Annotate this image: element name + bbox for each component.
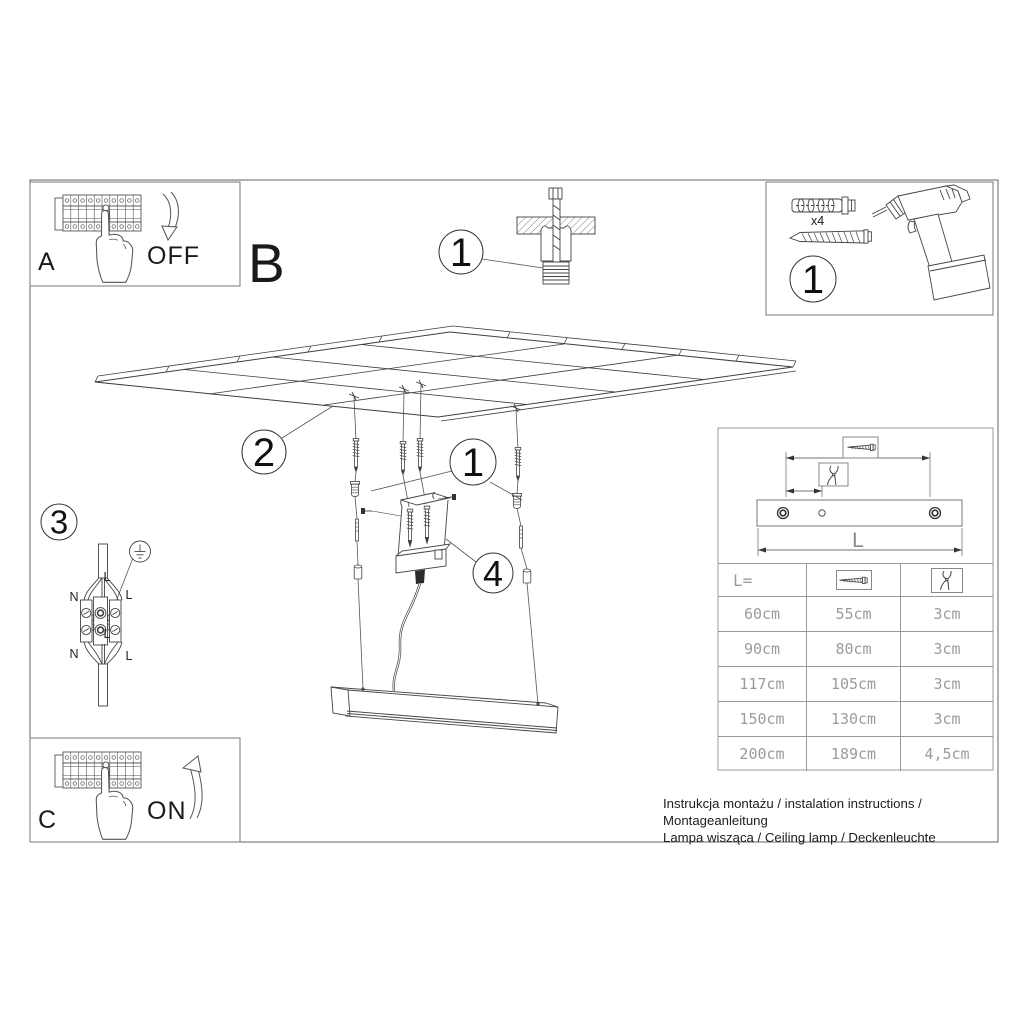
callout-anchor-detail: 1 — [439, 230, 543, 275]
table-cell: 200cm — [718, 736, 806, 771]
table-cell: 189cm — [806, 736, 900, 771]
step-a-label: A — [38, 248, 55, 276]
step-c-label: C — [38, 806, 56, 834]
table-header-pliers — [900, 564, 993, 596]
power-cable — [394, 583, 420, 691]
table-header-screw — [806, 564, 900, 596]
plug-quantity: x4 — [811, 214, 824, 228]
step-b-label: B — [248, 232, 285, 294]
svg-text:1: 1 — [450, 231, 472, 275]
canopy-bracket — [361, 492, 456, 691]
svg-text:4: 4 — [483, 553, 503, 594]
table-cell: 117cm — [718, 666, 806, 701]
tools-box: x4 — [766, 182, 993, 315]
table-cell: 60cm — [718, 596, 806, 631]
svg-text:2: 2 — [253, 431, 275, 475]
table-cell: 3cm — [900, 666, 993, 701]
callout-hardware: 1 — [371, 439, 522, 500]
table-cell: 3cm — [900, 596, 993, 631]
pendant-lamp — [331, 687, 558, 733]
svg-text:L: L — [104, 627, 111, 641]
svg-text:L: L — [104, 570, 111, 584]
svg-text:1: 1 — [462, 441, 484, 485]
footer-text: Instrukcja montażu / instalation instruc… — [663, 795, 1024, 846]
toggle-anchor-detail — [517, 188, 595, 284]
callout-ceiling: 2 — [242, 406, 333, 475]
off-label: OFF — [147, 242, 200, 270]
svg-text:N: N — [69, 647, 78, 661]
table-cell: 4,5cm — [900, 736, 993, 771]
svg-text:N: N — [69, 590, 78, 604]
lamp-top-view — [757, 500, 962, 526]
length-dimension-label: L — [852, 529, 864, 552]
footer-line-2: Lampa wisząca / Ceiling lamp / Deckenleu… — [663, 829, 1024, 846]
on-label: ON — [147, 797, 187, 825]
svg-text:1: 1 — [802, 258, 824, 302]
step-c-power-on: C ON — [30, 738, 240, 842]
svg-text:L: L — [126, 649, 133, 663]
screw-icon — [839, 575, 869, 586]
callout-tools: 1 — [790, 256, 836, 302]
wall-plug-icon — [792, 197, 855, 214]
table-header-length: L= — [718, 564, 806, 596]
callout-wiring-number: 3 — [50, 504, 68, 541]
svg-text:L: L — [126, 588, 133, 602]
table-cell: 3cm — [900, 701, 993, 736]
line-art: A OFF B 1 x4 — [0, 0, 1024, 1024]
table-cell: 3cm — [900, 631, 993, 666]
table-cell: 105cm — [806, 666, 900, 701]
earth-ground-icon — [130, 541, 151, 562]
callout-canopy: 4 — [446, 539, 513, 594]
size-table: L= 60cm 55cm 3cm 90cm 80cm 3cm 117cm 105… — [718, 563, 993, 770]
table-cell: 150cm — [718, 701, 806, 736]
table-cell: 80cm — [806, 631, 900, 666]
step-a-power-off: A OFF — [30, 182, 240, 286]
suspended-ceiling — [95, 326, 796, 421]
cutting-pliers-icon — [936, 569, 958, 591]
instruction-sheet: A OFF B 1 x4 — [0, 0, 1024, 1024]
table-cell: 130cm — [806, 701, 900, 736]
footer-line-1: Instrukcja montażu / instalation instruc… — [663, 795, 1024, 829]
table-cell: 55cm — [806, 596, 900, 631]
table-cell: 90cm — [718, 631, 806, 666]
